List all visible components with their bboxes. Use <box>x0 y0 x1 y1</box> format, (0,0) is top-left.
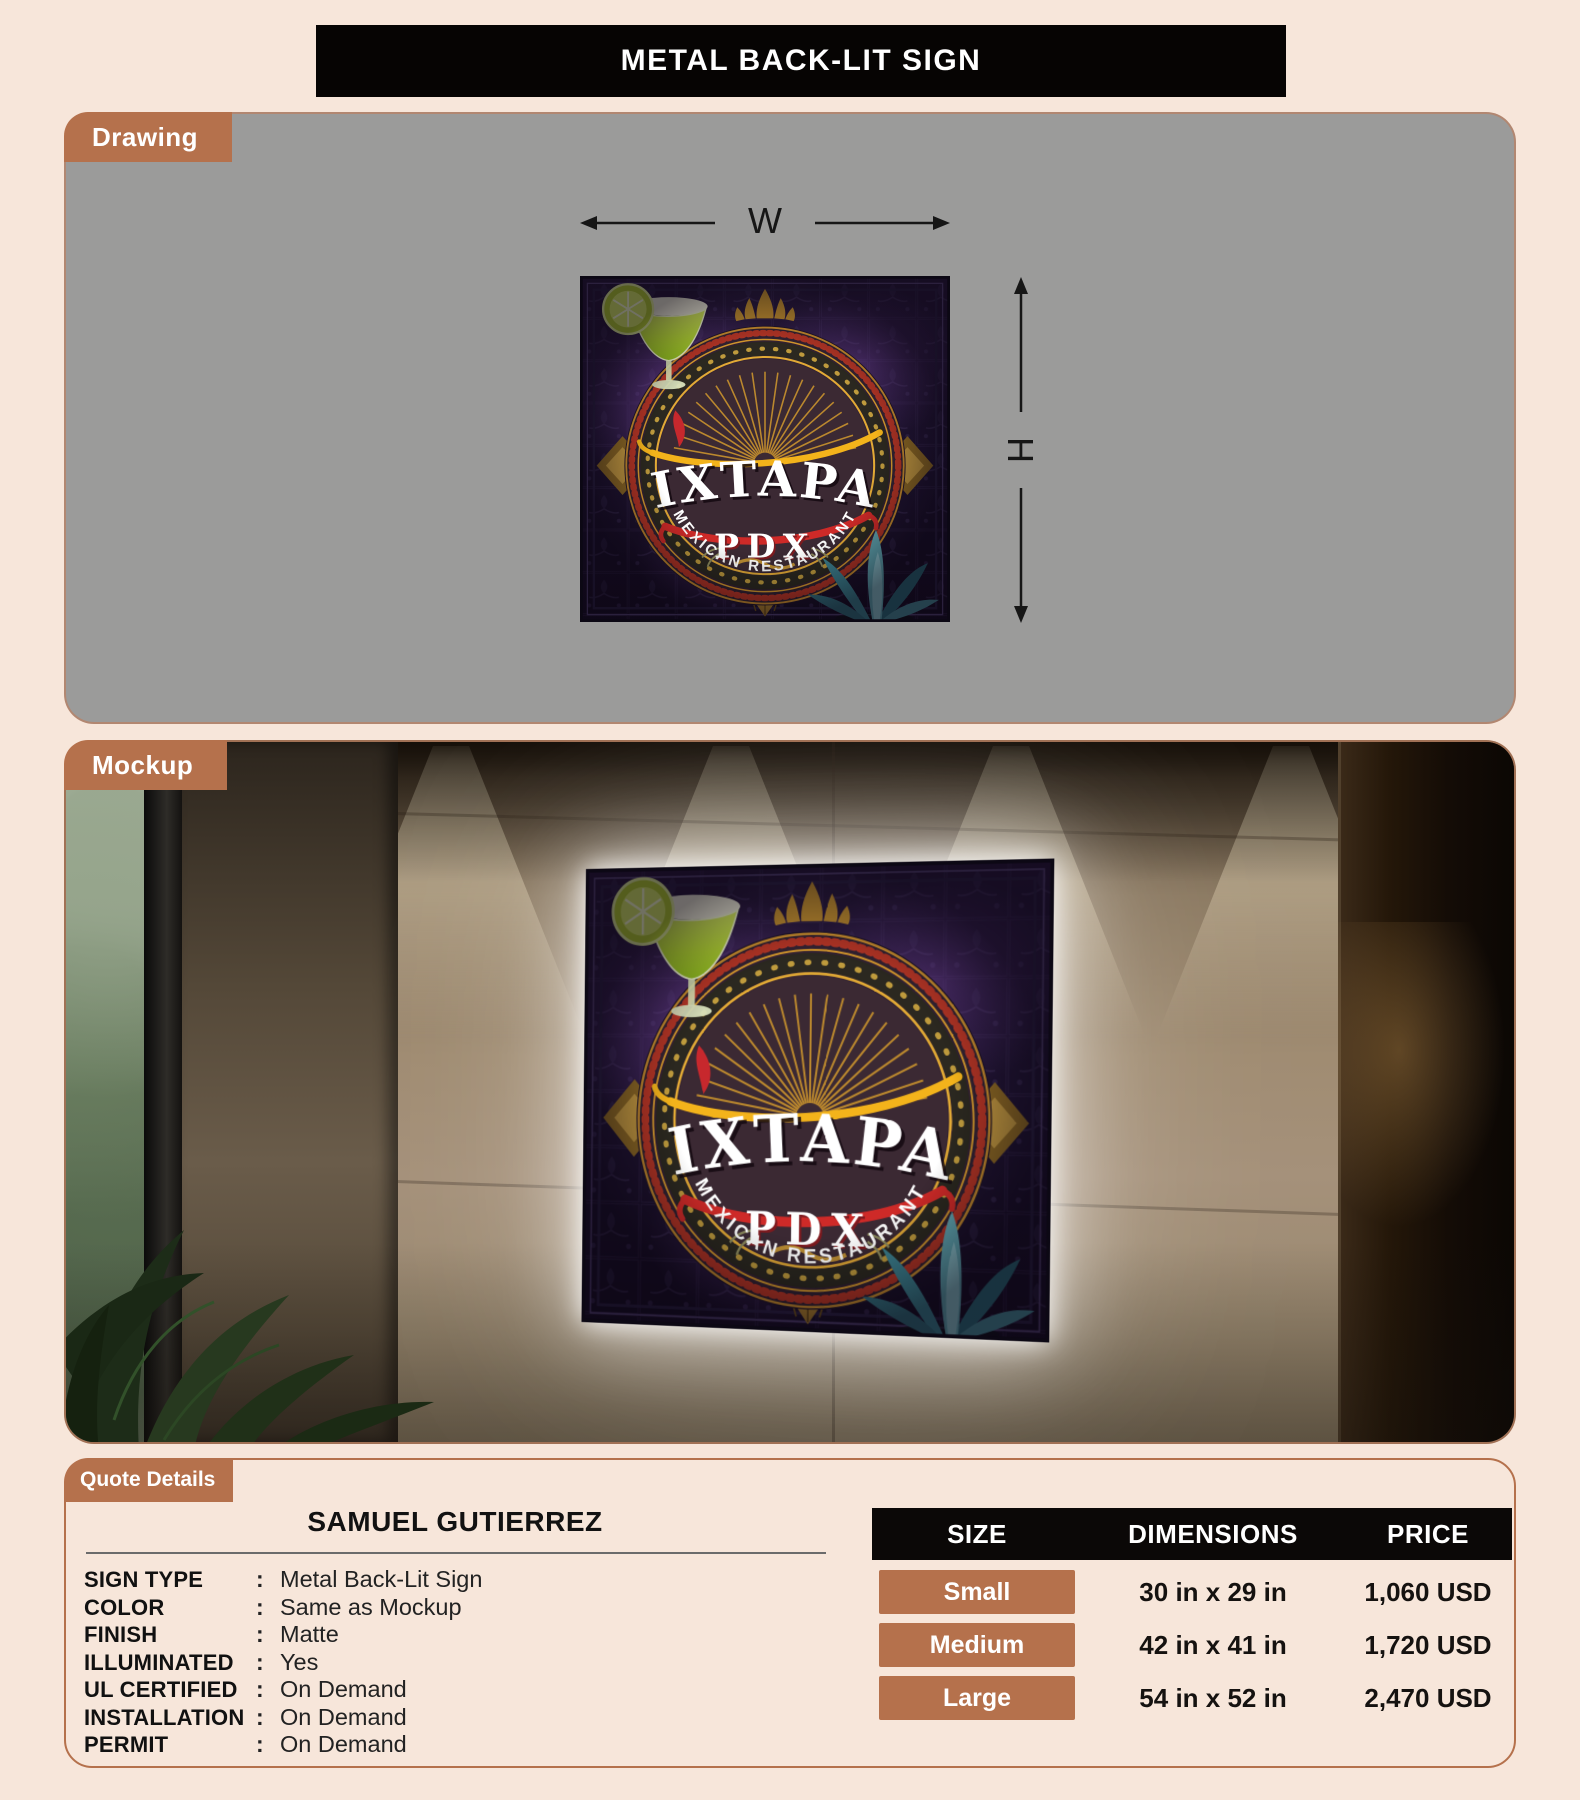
spec-row: PERMIT : On Demand <box>84 1731 804 1759</box>
spec-separator: : <box>256 1704 272 1731</box>
page-title: METAL BACK-LIT SIGN <box>621 44 982 78</box>
quote-sheet-page: IXTAPA IXTAPA PDX PDX MEXICAN RESTAURANT <box>0 0 1580 1800</box>
spec-separator: : <box>256 1594 272 1621</box>
sign-drawing-image <box>580 276 950 622</box>
pricing-row-large: Large 54 in x 52 in 2,470 USD <box>872 1676 1512 1720</box>
dimensions-value: 54 in x 52 in <box>1082 1683 1344 1714</box>
price-value: 1,060 USD <box>1344 1577 1512 1608</box>
spec-row: COLOR : Same as Mockup <box>84 1594 804 1622</box>
spec-label: INSTALLATION <box>84 1705 256 1731</box>
tab-mockup-label: Mockup <box>92 750 193 781</box>
door-light-glow <box>1338 922 1514 1242</box>
spec-label: ILLUMINATED <box>84 1650 256 1676</box>
size-small-button[interactable]: Small <box>879 1570 1075 1614</box>
spec-separator: : <box>256 1649 272 1676</box>
spec-separator: : <box>256 1676 272 1703</box>
height-arrow-icon <box>1008 277 1034 623</box>
column-header-price: PRICE <box>1344 1519 1512 1550</box>
dimensions-value: 30 in x 29 in <box>1082 1577 1344 1608</box>
size-large-button[interactable]: Large <box>879 1676 1075 1720</box>
spec-separator: : <box>256 1731 272 1758</box>
spec-value: Matte <box>272 1621 804 1648</box>
spec-row: UL CERTIFIED : On Demand <box>84 1676 804 1704</box>
spec-separator: : <box>256 1566 272 1593</box>
pricing-table: SIZE DIMENSIONS PRICE Small 30 in x 29 i… <box>872 1508 1512 1720</box>
spec-value: On Demand <box>272 1704 804 1731</box>
quote-details-panel: SAMUEL GUTIERREZ SIGN TYPE : Metal Back-… <box>64 1458 1516 1768</box>
spec-label: SIGN TYPE <box>84 1567 256 1593</box>
spec-value: Metal Back-Lit Sign <box>272 1566 804 1593</box>
size-medium-button[interactable]: Medium <box>879 1623 1075 1667</box>
dimensions-value: 42 in x 41 in <box>1082 1630 1344 1661</box>
tab-drawing-label: Drawing <box>92 122 198 153</box>
column-header-size: SIZE <box>872 1519 1082 1550</box>
mockup-panel <box>64 740 1516 1444</box>
price-value: 1,720 USD <box>1344 1630 1512 1661</box>
spec-label: UL CERTIFIED <box>84 1677 256 1703</box>
spec-row: ILLUMINATED : Yes <box>84 1649 804 1677</box>
spec-row: INSTALLATION : On Demand <box>84 1704 804 1732</box>
spec-value: Same as Mockup <box>272 1594 804 1621</box>
spec-value: On Demand <box>272 1676 804 1703</box>
pricing-table-header: SIZE DIMENSIONS PRICE <box>872 1508 1512 1560</box>
price-value: 2,470 USD <box>1344 1683 1512 1714</box>
spec-row: SIGN TYPE : Metal Back-Lit Sign <box>84 1566 804 1594</box>
tab-quote-details: Quote Details <box>64 1458 233 1502</box>
spec-label: PERMIT <box>84 1732 256 1758</box>
mockup-scene <box>66 742 1514 1442</box>
potted-plant-icon <box>64 990 504 1444</box>
tab-quote-details-label: Quote Details <box>80 1468 215 1492</box>
tab-mockup: Mockup <box>64 740 227 790</box>
page-title-bar: METAL BACK-LIT SIGN <box>316 25 1286 97</box>
pricing-row-medium: Medium 42 in x 41 in 1,720 USD <box>872 1623 1512 1667</box>
tab-drawing: Drawing <box>64 112 232 162</box>
spec-separator: : <box>256 1621 272 1648</box>
pricing-row-small: Small 30 in x 29 in 1,060 USD <box>872 1570 1512 1614</box>
divider <box>86 1552 826 1554</box>
width-arrow-icon <box>580 210 950 236</box>
spec-value: On Demand <box>272 1731 804 1758</box>
spec-value: Yes <box>272 1649 804 1676</box>
customer-name: SAMUEL GUTIERREZ <box>86 1506 824 1538</box>
sign-mockup-image <box>581 859 1054 1343</box>
spec-list: SIGN TYPE : Metal Back-Lit Sign COLOR : … <box>84 1566 804 1759</box>
spec-label: COLOR <box>84 1595 256 1621</box>
column-header-dimensions: DIMENSIONS <box>1082 1519 1344 1550</box>
spec-label: FINISH <box>84 1622 256 1648</box>
spec-row: FINISH : Matte <box>84 1621 804 1649</box>
